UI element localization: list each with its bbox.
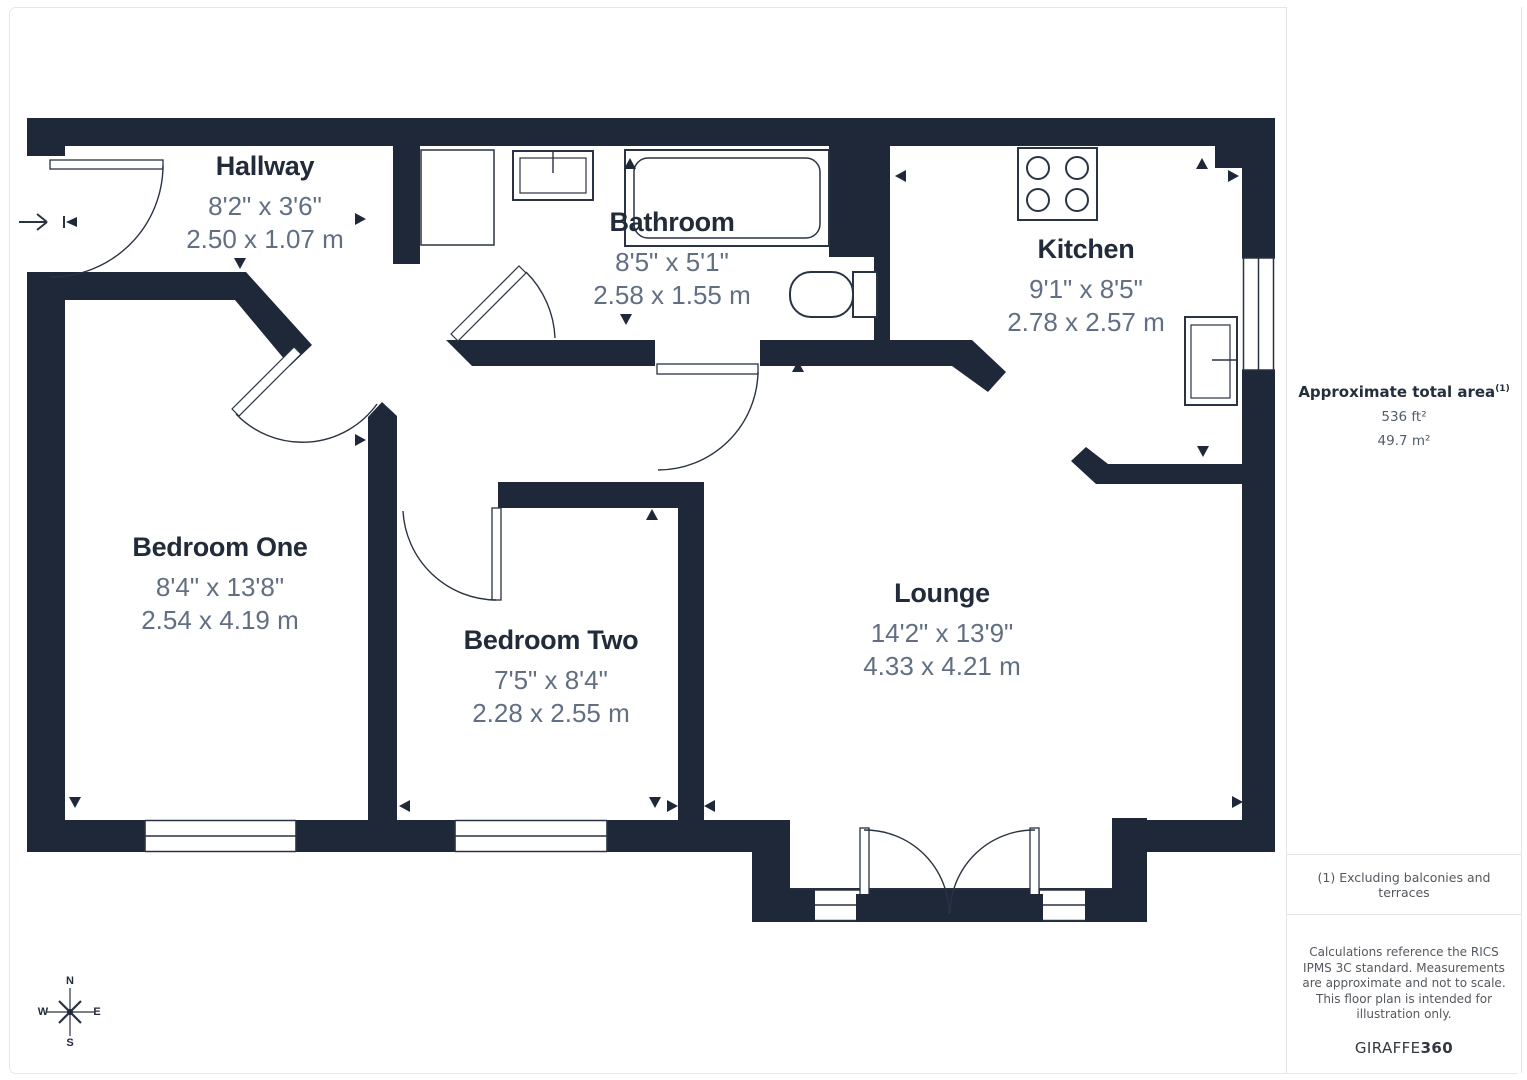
- compass-south-label: S: [66, 1037, 73, 1049]
- room-size-metric: 2.28 x 2.55 m: [464, 697, 639, 730]
- room-size-imperial: 8'2" x 3'6": [186, 190, 344, 223]
- room-size-imperial: 7'5" x 8'4": [464, 664, 639, 697]
- room-label-bedroom-two: Bedroom Two 7'5" x 8'4" 2.28 x 2.55 m: [464, 619, 639, 730]
- room-label-hallway: Hallway 8'2" x 3'6" 2.50 x 1.07 m: [186, 145, 344, 256]
- area-footnote: (1) Excluding balconies and terraces: [1287, 854, 1521, 915]
- room-size-metric: 2.78 x 2.57 m: [1007, 306, 1165, 339]
- compass-west-label: W: [38, 1006, 48, 1018]
- cupboard-icon: [421, 150, 494, 245]
- compass-icon: [46, 988, 94, 1036]
- room-size-imperial: 9'1" x 8'5": [1007, 273, 1165, 306]
- brand-logo-bold: 360: [1421, 1039, 1454, 1057]
- toilet-icon: [790, 272, 877, 317]
- room-label-kitchen: Kitchen 9'1" x 8'5" 2.78 x 2.57 m: [1007, 228, 1165, 339]
- room-size-imperial: 14'2" x 13'9": [863, 617, 1021, 650]
- room-name: Bedroom One: [132, 526, 307, 568]
- total-area-sqm: 49.7 m²: [1287, 433, 1521, 449]
- room-size-metric: 2.54 x 4.19 m: [132, 604, 307, 637]
- total-area-sqft: 536 ft²: [1287, 409, 1521, 425]
- room-name: Lounge: [863, 572, 1021, 614]
- brand-logo: GIRAFFE360: [1287, 1039, 1521, 1057]
- entrance-arrow-icon: [19, 214, 47, 230]
- disclaimer-text: Calculations reference the RICS IPMS 3C …: [1299, 945, 1509, 1023]
- room-label-bedroom-one: Bedroom One 8'4" x 13'8" 2.54 x 4.19 m: [132, 526, 307, 637]
- room-size-metric: 2.58 x 1.55 m: [593, 279, 751, 312]
- bathroom-sink-icon: [513, 151, 593, 200]
- room-name: Bedroom Two: [464, 619, 639, 661]
- room-size-metric: 4.33 x 4.21 m: [863, 650, 1021, 683]
- total-area-block: Approximate total area(1) 536 ft² 49.7 m…: [1287, 383, 1521, 449]
- room-name: Hallway: [186, 145, 344, 187]
- room-label-bathroom: Bathroom 8'5" x 5'1" 2.58 x 1.55 m: [593, 201, 751, 312]
- compass-north-label: N: [66, 975, 74, 987]
- total-area-title: Approximate total area(1): [1287, 383, 1521, 401]
- room-size-metric: 2.50 x 1.07 m: [186, 223, 344, 256]
- footnote-marker: (1): [1495, 384, 1510, 394]
- stove-icon: [1018, 148, 1097, 220]
- brand-logo-regular: GIRAFFE: [1355, 1039, 1421, 1057]
- room-name: Bathroom: [593, 201, 751, 243]
- room-name: Kitchen: [1007, 228, 1165, 270]
- floorplan-page: Hallway 8'2" x 3'6" 2.50 x 1.07 m Bathro…: [0, 0, 1527, 1080]
- kitchen-sink-icon: [1185, 317, 1237, 405]
- room-size-imperial: 8'4" x 13'8": [132, 571, 307, 604]
- compass-east-label: E: [93, 1006, 100, 1018]
- room-size-imperial: 8'5" x 5'1": [593, 246, 751, 279]
- disclaimer-block: Calculations reference the RICS IPMS 3C …: [1287, 915, 1521, 1057]
- sidebar: Approximate total area(1) 536 ft² 49.7 m…: [1286, 7, 1522, 1073]
- room-label-lounge: Lounge 14'2" x 13'9" 4.33 x 4.21 m: [863, 572, 1021, 683]
